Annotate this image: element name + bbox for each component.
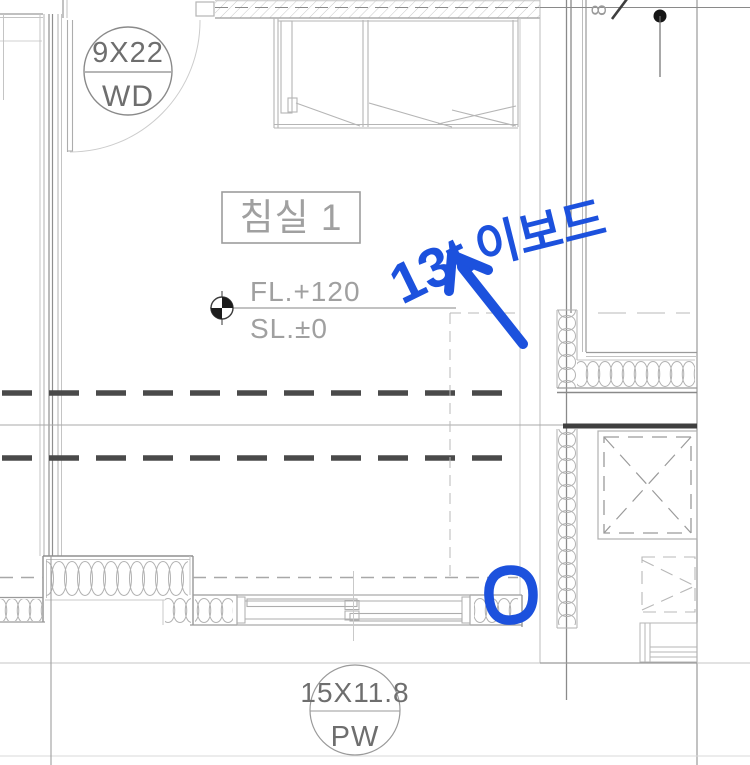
duct-diagonal-1 xyxy=(642,560,695,586)
window xyxy=(237,571,470,641)
duct-dashed-box xyxy=(642,557,695,612)
insulation-low-left xyxy=(0,599,42,621)
insulation-vertical-upper xyxy=(557,310,577,388)
door-jamb-right xyxy=(196,2,214,16)
door-tag: 9X22 WD xyxy=(84,27,172,115)
bottom-wall xyxy=(0,556,522,627)
duct-diagonal-2 xyxy=(642,586,695,610)
shaft-x-box xyxy=(598,431,697,539)
interior-dashed-outline xyxy=(450,313,518,577)
insulation-horizontal-right xyxy=(577,360,695,388)
right-upper-room xyxy=(586,313,697,357)
closet xyxy=(274,18,518,128)
room-label-text: 침실 1 xyxy=(240,197,343,238)
beam-dashed-lines xyxy=(0,393,697,458)
insulation-vertical-lower xyxy=(557,429,577,625)
duct-outline xyxy=(642,557,695,612)
window-tag-code: PW xyxy=(331,721,380,753)
window-tag: 15X11.8 PW xyxy=(300,665,409,755)
left-wall xyxy=(0,14,62,556)
door-tag-code: WD xyxy=(102,80,154,113)
annotation-arrow-shaft xyxy=(462,267,523,344)
louver-grille xyxy=(640,623,697,662)
insulation-high-band xyxy=(46,560,188,597)
insulation-step xyxy=(165,597,191,624)
window-tag-size: 15X11.8 xyxy=(300,677,409,708)
closet-door-swing-3 xyxy=(438,106,516,124)
level-symbol-quadrant-ne xyxy=(222,297,233,308)
floor-plan-svg: 9X22 WD 8 침실 xyxy=(0,0,750,765)
door-tag-size: 9X22 xyxy=(92,37,164,69)
insulation-low-mid xyxy=(195,597,233,624)
window-sash-upper xyxy=(247,599,357,607)
dimension-tick xyxy=(612,0,627,19)
right-wall-insulation xyxy=(557,310,697,628)
floor-plan-page: 9X22 WD 8 침실 xyxy=(0,0,750,765)
floor-level-text: FL.+120 xyxy=(250,276,361,307)
closet-door-swing-1 xyxy=(296,103,360,126)
grid-bubble-label: 8 xyxy=(588,4,611,16)
window-sash-lower xyxy=(350,614,462,622)
top-wall-hatch xyxy=(215,0,540,18)
closet-side-panel xyxy=(281,21,292,113)
annotation-material-text: 이보드 xyxy=(470,192,611,275)
level-symbol-quadrant-sw xyxy=(211,308,222,319)
room-label-box: 침실 1 xyxy=(222,192,360,243)
wall-hatch-fill xyxy=(215,0,540,18)
slab-level-text: SL.±0 xyxy=(250,313,328,344)
